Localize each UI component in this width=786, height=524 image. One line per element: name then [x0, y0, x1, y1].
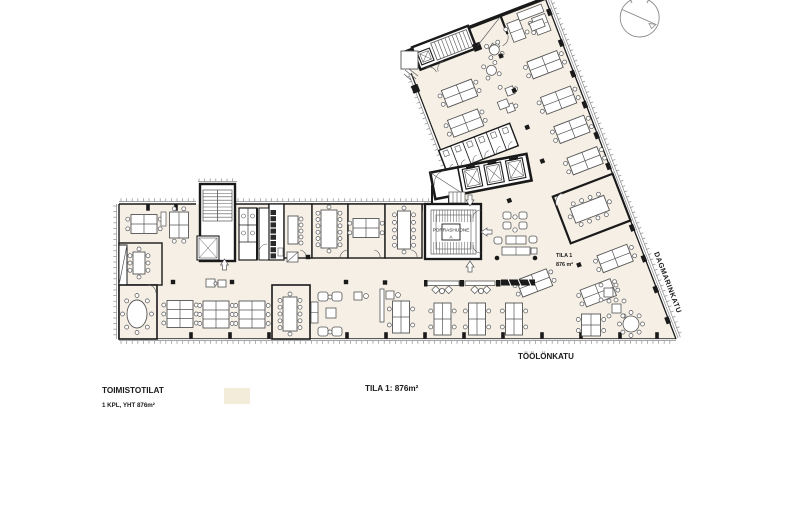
svg-text:TOIMISTOTILAT: TOIMISTOTILAT: [102, 386, 164, 395]
svg-text:TILA 1: TILA 1: [556, 253, 572, 259]
svg-text:TILA 1: 876m²: TILA 1: 876m²: [365, 384, 419, 393]
svg-text:1 KPL, YHT 876m²: 1 KPL, YHT 876m²: [102, 402, 155, 409]
svg-text:876 m²: 876 m²: [556, 262, 573, 268]
svg-text:PORRASHUONE: PORRASHUONE: [433, 228, 470, 233]
svg-text:TÖÖLÖNKATU: TÖÖLÖNKATU: [518, 352, 574, 361]
